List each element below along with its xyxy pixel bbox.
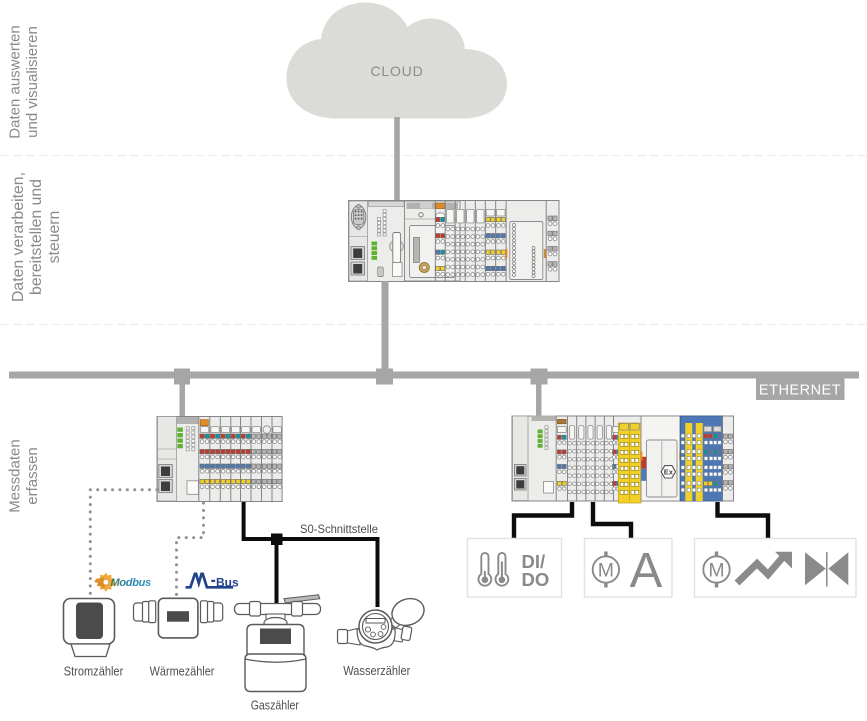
- svg-text:M: M: [708, 560, 724, 582]
- svg-text:M: M: [598, 560, 614, 582]
- svg-text:Messdaten: Messdaten: [7, 439, 24, 512]
- svg-text:Modbus: Modbus: [111, 577, 152, 589]
- svg-text:steuern: steuern: [46, 211, 63, 264]
- svg-text:und visualisieren: und visualisieren: [24, 26, 41, 138]
- svg-text:Daten verarbeiten,: Daten verarbeiten,: [10, 172, 27, 302]
- svg-text:A: A: [630, 544, 663, 598]
- svg-text:DO: DO: [522, 569, 550, 590]
- svg-text:CLOUD: CLOUD: [370, 63, 423, 79]
- svg-text:Wasserzähler: Wasserzähler: [343, 663, 411, 678]
- svg-text:erfassen: erfassen: [24, 447, 41, 505]
- svg-text:Stromzähler: Stromzähler: [64, 664, 124, 679]
- svg-text:Gaszähler: Gaszähler: [251, 698, 300, 713]
- svg-text:bereitstellen und: bereitstellen und: [28, 179, 45, 295]
- svg-text:Ex: Ex: [664, 467, 674, 476]
- svg-text:Bus: Bus: [216, 576, 239, 590]
- svg-text:Daten auswerten: Daten auswerten: [7, 25, 24, 138]
- svg-text:S0-Schnittstelle: S0-Schnittstelle: [300, 522, 378, 536]
- svg-text:Wärmezähler: Wärmezähler: [150, 664, 215, 679]
- svg-text:ETHERNET: ETHERNET: [759, 383, 841, 399]
